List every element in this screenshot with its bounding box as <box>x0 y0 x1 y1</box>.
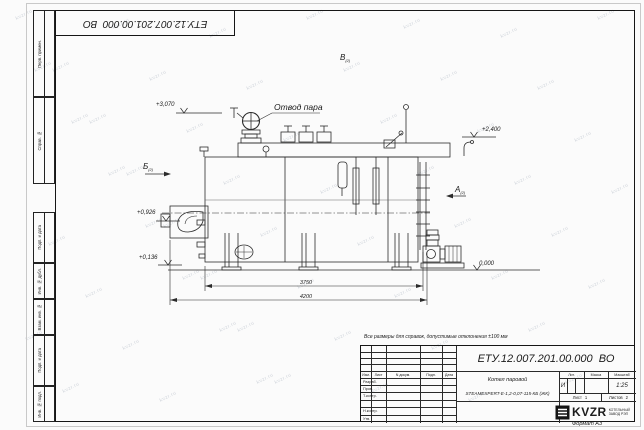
water-level-gauges <box>338 157 379 215</box>
grid-line <box>361 358 456 359</box>
dimension-4200 <box>170 240 427 305</box>
header-masshtab: Масштаб <box>608 371 636 378</box>
elevation-0000: 0,000 <box>479 261 495 267</box>
header-izm: Изм. <box>361 371 371 378</box>
margin-block-sprav-no: Справ. № <box>33 97 55 184</box>
header-podp: Подп. <box>420 371 442 378</box>
margin-block-podp-data-1: Подп. и дата <box>33 212 55 263</box>
steam-outlet-valve <box>230 108 261 143</box>
dimension-4200-value: 4200 <box>300 294 313 300</box>
drawing-sheet: kvzr.rukvzr.rukvzr.rukvzr.rukvzr.rukvzr.… <box>0 0 644 430</box>
view-label-v: В(2) <box>340 53 351 63</box>
scale-value: 1:25 <box>608 378 636 393</box>
kvzr-logo-sub2: ЗАВОД РЭП <box>609 412 630 416</box>
header-list: Лист <box>371 371 386 378</box>
doc-name-line2: STEAMEXPERT-Е-1,2-0,07-115-КБ (ЖК) <box>456 386 559 401</box>
left-margin-column: Перв. примен. Справ. № Подп. и дата Инв.… <box>33 10 55 422</box>
margin-block-inv-dubl: Инв. № дубл. <box>33 263 55 299</box>
steam-outlet-label: Отвод пара <box>274 102 323 112</box>
header-docum: N докум. <box>386 371 420 378</box>
steam-outlet-leader <box>257 113 320 121</box>
title-block: ЕТУ.12.007.201.00.000 ВО Котел паровой S… <box>360 345 635 422</box>
elevation-3070: +3,070 <box>156 102 175 108</box>
margin-block-vzam-inv: Взам. инв. № <box>33 299 55 335</box>
margin-block-inv-podl: Инв. № подл. <box>33 386 55 422</box>
view-label-a: А(2) <box>454 185 466 195</box>
elevation-0136: +0,136 <box>139 255 158 261</box>
support-legs <box>222 233 411 270</box>
header-massa: Масса <box>584 371 608 378</box>
elevation-2400: +2,400 <box>482 127 501 133</box>
margin-block-perv-primen: Перв. примен. <box>33 10 55 97</box>
safety-valves <box>281 126 331 142</box>
lit-value: И <box>559 378 567 393</box>
row-tkontr: Т.контр. <box>363 392 385 400</box>
burner <box>161 206 208 238</box>
view-label-b: Б(2) <box>143 162 154 172</box>
manhole <box>235 245 253 259</box>
lever-safety-valve <box>384 105 474 157</box>
header-data: Дата <box>442 371 456 378</box>
margin-block-podp-data-2: Подп. и дата <box>33 335 55 386</box>
organization-cell: KVZR КОТЕЛЬНЫЙ ЗАВОД РЭП <box>549 401 636 423</box>
dimension-3750-value: 3750 <box>300 280 313 286</box>
view-arrow-b <box>145 172 171 177</box>
grid-line <box>361 352 456 353</box>
left-wall-fittings <box>197 147 208 258</box>
kvzr-logo: KVZR КОТЕЛЬНЫЙ ЗАВОД РЭП <box>555 405 630 420</box>
sheet-number-cell: Лист1 <box>559 393 601 401</box>
grid-line <box>575 378 576 393</box>
grid-line <box>361 364 456 365</box>
grid-line <box>567 378 568 393</box>
designation-text: ЕТУ.12.007.201.00.000 ВО <box>478 353 615 365</box>
top-designation-text: ЕТУ.12.007.201.00.000 ВО <box>83 18 207 29</box>
kvzr-logo-text: KVZR <box>572 405 607 419</box>
row-razrab: Разраб. <box>363 378 385 385</box>
grid-line <box>361 400 456 401</box>
header-lit: Лит. <box>559 371 584 378</box>
row-prov: Пров. <box>363 385 385 392</box>
pressure-gauge <box>263 146 269 157</box>
reference-note: Все размеры для справок, допустимые откл… <box>364 334 594 340</box>
format-label: Формат А3 <box>552 421 622 427</box>
row-nkontr: Н.контр. <box>363 407 385 415</box>
elevation-0926: +0,926 <box>137 210 156 216</box>
designation-cell: ЕТУ.12.007.201.00.000 ВО <box>456 346 636 371</box>
top-designation-stamp: ЕТУ.12.007.201.00.000 ВО <box>55 10 235 36</box>
sheets-total-cell: Листов2 <box>601 393 636 401</box>
kvzr-logo-icon <box>555 405 570 420</box>
row-utv: Утв. <box>363 415 385 423</box>
